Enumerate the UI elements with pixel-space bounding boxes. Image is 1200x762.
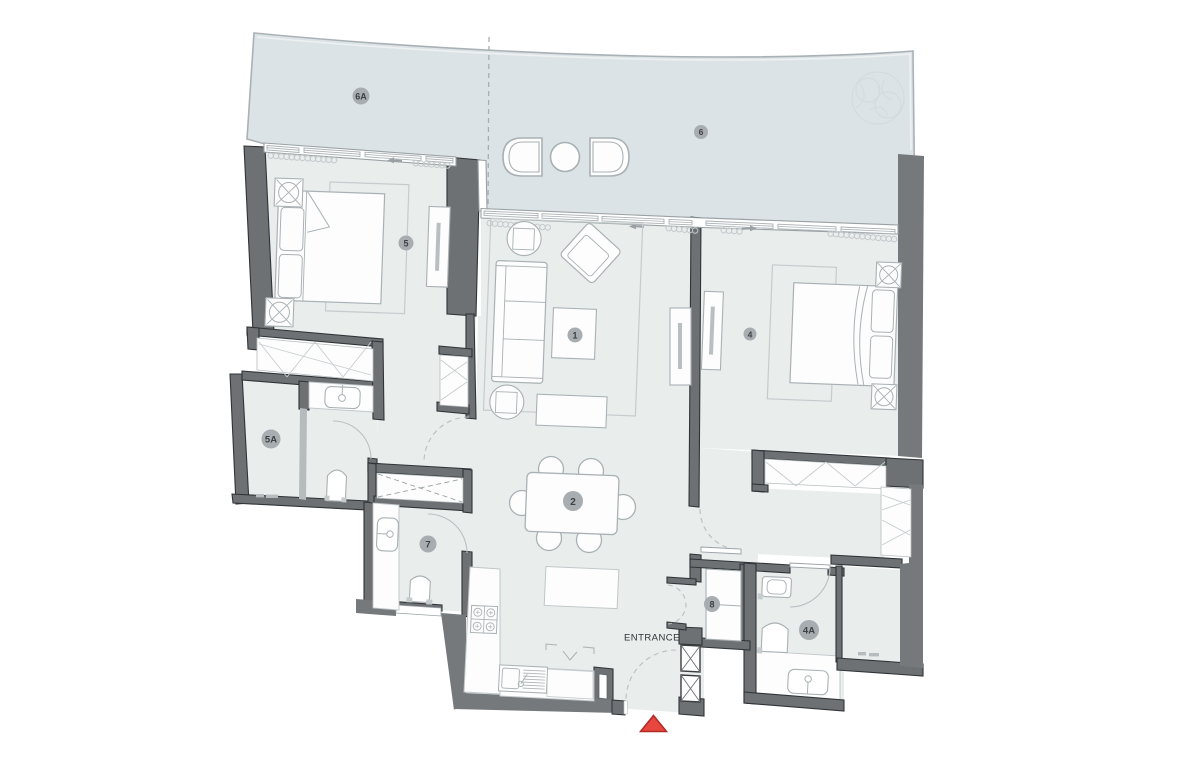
svg-text:1: 1 — [572, 330, 577, 340]
svg-text:4A: 4A — [803, 625, 815, 636]
svg-text:5A: 5A — [265, 434, 277, 445]
svg-text:8: 8 — [709, 599, 714, 609]
svg-text:7: 7 — [425, 539, 430, 550]
svg-text:6: 6 — [699, 127, 704, 137]
svg-text:2: 2 — [570, 497, 576, 508]
svg-text:5: 5 — [403, 238, 408, 248]
svg-text:4: 4 — [748, 329, 753, 339]
svg-text:6A: 6A — [355, 91, 367, 101]
svg-text:ENTRANCE: ENTRANCE — [624, 633, 680, 644]
